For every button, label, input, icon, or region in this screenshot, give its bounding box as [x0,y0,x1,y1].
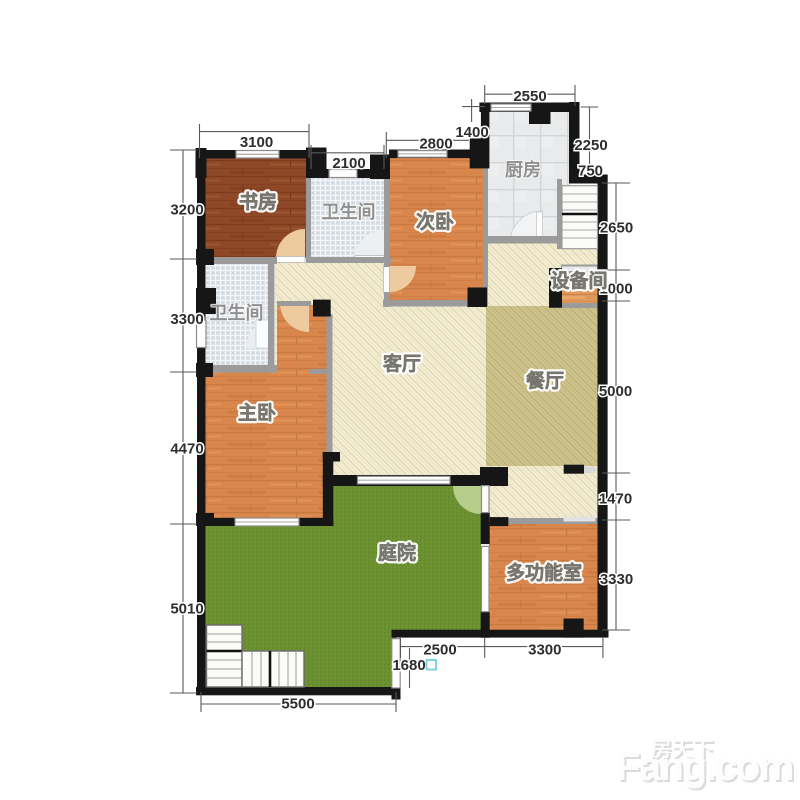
svg-text:3100: 3100 [240,134,273,151]
svg-text:3330: 3330 [600,571,633,588]
svg-text:2550: 2550 [513,88,546,105]
svg-text:3300: 3300 [170,311,203,328]
svg-text:卫生间: 卫生间 [322,201,376,222]
svg-text:庭院: 庭院 [378,541,416,564]
svg-text:5010: 5010 [170,601,203,618]
svg-text:2800: 2800 [419,136,452,153]
svg-text:2250: 2250 [574,137,607,154]
svg-text:多功能室: 多功能室 [506,561,582,584]
svg-text:卫生间: 卫生间 [210,302,264,323]
svg-text:4470: 4470 [170,441,203,458]
svg-text:次卧: 次卧 [416,210,454,233]
svg-text:1470: 1470 [599,491,632,508]
svg-text:厨房: 厨房 [505,159,541,180]
svg-text:1680: 1680 [392,657,425,674]
svg-text:5000: 5000 [599,383,632,400]
svg-text:2500: 2500 [423,642,456,659]
svg-text:750: 750 [578,163,603,180]
svg-text:3300: 3300 [528,642,561,659]
svg-text:主卧: 主卧 [238,402,276,424]
svg-text:2100: 2100 [332,155,365,172]
svg-text:设备间: 设备间 [550,269,607,292]
svg-text:餐厅: 餐厅 [526,369,564,392]
svg-text:客厅: 客厅 [383,352,421,375]
svg-text:书房: 书房 [239,190,277,213]
svg-text:1400: 1400 [455,124,488,141]
svg-text:5500: 5500 [281,696,314,713]
svg-text:Fang.com: Fang.com [616,745,793,789]
svg-text:2650: 2650 [600,220,633,237]
svg-text:3200: 3200 [170,202,203,219]
